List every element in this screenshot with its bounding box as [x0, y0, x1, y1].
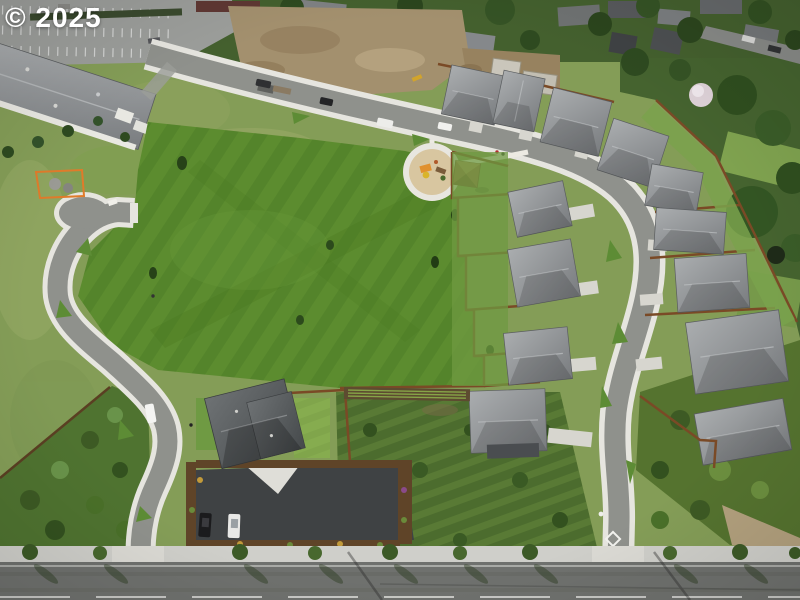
aerial-photo: © 2025 [0, 0, 800, 600]
vignette [0, 0, 800, 600]
aerial-photo-canvas [0, 0, 800, 600]
copyright-watermark: © 2025 [5, 2, 102, 34]
